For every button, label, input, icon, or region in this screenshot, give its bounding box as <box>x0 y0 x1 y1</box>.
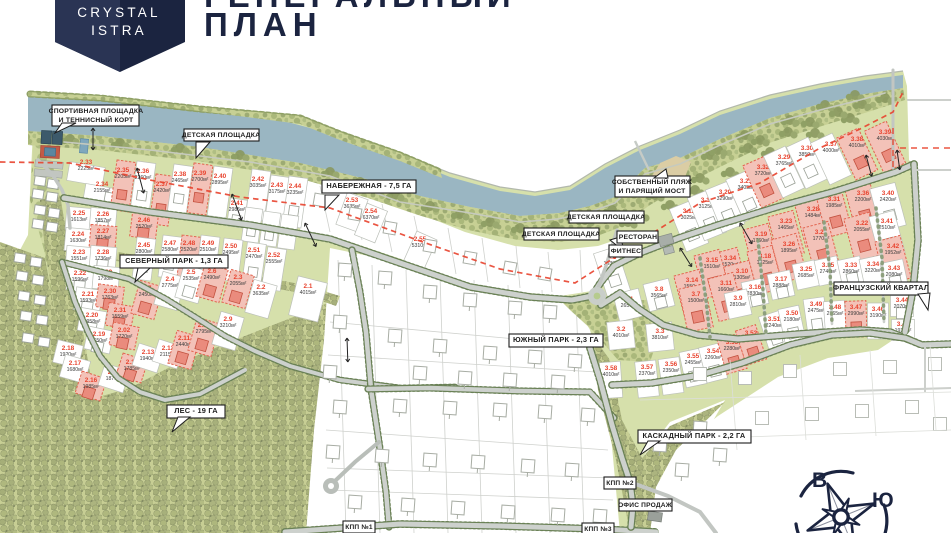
svg-text:2.3: 2.3 <box>234 274 243 281</box>
svg-text:2.6: 2.6 <box>208 268 217 275</box>
svg-text:1985м²: 1985м² <box>826 203 843 209</box>
svg-text:1465м²: 1465м² <box>778 225 795 231</box>
svg-text:2.52: 2.52 <box>268 252 281 259</box>
svg-text:3.14: 3.14 <box>686 277 699 284</box>
svg-text:2.34: 2.34 <box>96 181 109 188</box>
svg-text:ISTRA: ISTRA <box>91 23 147 38</box>
svg-text:3175м²: 3175м² <box>269 189 286 195</box>
svg-text:3.41: 3.41 <box>881 218 894 225</box>
svg-text:2685м²: 2685м² <box>798 273 815 279</box>
svg-text:2.33: 2.33 <box>80 159 93 166</box>
svg-text:3.40: 3.40 <box>882 190 895 197</box>
svg-text:СЕВЕРНЫЙ ПАРК - 1,3 ГА: СЕВЕРНЫЙ ПАРК - 1,3 ГА <box>125 256 223 265</box>
svg-text:3.10: 3.10 <box>736 268 749 275</box>
svg-text:2455м²: 2455м² <box>685 360 702 366</box>
svg-text:1551м²: 1551м² <box>71 256 88 262</box>
svg-text:2.20: 2.20 <box>86 312 99 319</box>
svg-text:РЕСТОРАН: РЕСТОРАН <box>619 234 657 241</box>
svg-text:ФИТНЕС: ФИТНЕС <box>611 248 641 255</box>
svg-text:ЮЖНЫЙ ПАРК - 2,3 ГА: ЮЖНЫЙ ПАРК - 2,3 ГА <box>513 335 599 344</box>
svg-text:2800м²: 2800м² <box>136 249 153 255</box>
svg-text:1484м²: 1484м² <box>805 213 822 219</box>
svg-text:3.29: 3.29 <box>778 154 791 161</box>
svg-text:4030м²: 4030м² <box>877 136 894 142</box>
svg-text:2555м²: 2555м² <box>266 259 283 265</box>
svg-text:2.45: 2.45 <box>138 242 151 249</box>
svg-text:2.25: 2.25 <box>73 210 86 217</box>
svg-text:3.51: 3.51 <box>768 316 781 323</box>
svg-text:2350м²: 2350м² <box>663 368 680 374</box>
svg-text:Ю: Ю <box>872 489 894 512</box>
svg-text:2765м²: 2765м² <box>827 311 844 317</box>
svg-text:1763м²: 1763м² <box>102 295 119 301</box>
svg-text:2.17: 2.17 <box>69 360 82 367</box>
svg-text:2080м²: 2080м² <box>886 272 903 278</box>
svg-text:КАСКАДНЫЙ ПАРК - 2,2 ГА: КАСКАДНЫЙ ПАРК - 2,2 ГА <box>643 431 746 440</box>
svg-text:2.5: 2.5 <box>187 269 196 276</box>
svg-text:2055м²: 2055м² <box>854 227 871 233</box>
svg-text:2510м²: 2510м² <box>200 247 217 253</box>
svg-text:ДЕТСКАЯ ПЛОЩАДКА: ДЕТСКАЯ ПЛОЩАДКА <box>182 132 260 139</box>
svg-text:2.23: 2.23 <box>73 249 86 256</box>
svg-text:2180м²: 2180м² <box>784 317 801 323</box>
svg-text:3.38: 3.38 <box>851 136 864 143</box>
svg-text:3.49: 3.49 <box>810 301 823 308</box>
svg-text:2775м²: 2775м² <box>162 283 179 289</box>
svg-text:4010м²: 4010м² <box>849 143 866 149</box>
svg-text:3.8: 3.8 <box>655 286 664 293</box>
svg-text:3.58: 3.58 <box>605 365 618 372</box>
svg-text:3.28: 3.28 <box>807 206 820 213</box>
svg-text:3.31: 3.31 <box>828 196 841 203</box>
svg-text:2.1: 2.1 <box>304 283 313 290</box>
svg-text:2.21: 2.21 <box>82 291 95 298</box>
svg-text:ФРАНЦУЗСКИЙ КВАРТАЛ: ФРАНЦУЗСКИЙ КВАРТАЛ <box>833 283 929 292</box>
svg-text:2.43: 2.43 <box>271 182 284 189</box>
svg-text:1593м²: 1593м² <box>80 298 97 304</box>
svg-text:3.47: 3.47 <box>850 304 863 311</box>
svg-text:ОФИС ПРОДАЖ: ОФИС ПРОДАЖ <box>618 502 672 509</box>
svg-text:НАБЕРЕЖНАЯ - 7,5 ГА: НАБЕРЕЖНАЯ - 7,5 ГА <box>326 181 412 190</box>
svg-text:2.53: 2.53 <box>346 197 359 204</box>
svg-text:2.46: 2.46 <box>138 217 151 224</box>
svg-text:ЛЕС - 19 ГА: ЛЕС - 19 ГА <box>174 406 218 415</box>
svg-text:2.38: 2.38 <box>174 171 187 178</box>
svg-text:КПП №1: КПП №1 <box>345 524 373 531</box>
svg-text:ДЕТСКАЯ ПЛОЩАДКА: ДЕТСКАЯ ПЛОЩАДКА <box>522 231 600 238</box>
svg-text:2520м²: 2520м² <box>136 224 153 230</box>
svg-text:1736м²: 1736м² <box>95 256 112 262</box>
svg-text:2.35: 2.35 <box>117 167 130 174</box>
svg-text:3.23: 3.23 <box>780 218 793 225</box>
svg-text:2830м²: 2830м² <box>747 291 764 297</box>
svg-text:2465м²: 2465м² <box>172 178 189 184</box>
svg-text:2.9: 2.9 <box>224 316 233 323</box>
svg-text:2.13: 2.13 <box>142 349 155 356</box>
svg-text:3.55: 3.55 <box>687 353 700 360</box>
svg-text:2.28: 2.28 <box>97 249 110 256</box>
svg-text:1559м²: 1559м² <box>112 314 129 320</box>
svg-text:3.25: 3.25 <box>800 266 813 273</box>
svg-text:3210м²: 3210м² <box>220 323 237 329</box>
svg-text:1596м²: 1596м² <box>72 277 89 283</box>
svg-text:2.11: 2.11 <box>178 335 191 342</box>
svg-text:2990м²: 2990м² <box>848 311 865 317</box>
svg-text:2.24: 2.24 <box>72 231 85 238</box>
svg-text:3.33: 3.33 <box>845 262 858 269</box>
svg-text:3235м²: 3235м² <box>287 190 304 196</box>
svg-text:ДЕТСКАЯ ПЛОЩАДКА: ДЕТСКАЯ ПЛОЩАДКА <box>567 214 645 221</box>
svg-text:3.34: 3.34 <box>724 255 737 262</box>
svg-text:КПП №2: КПП №2 <box>606 480 634 487</box>
svg-text:2.02: 2.02 <box>118 327 131 334</box>
svg-text:2860м²: 2860м² <box>843 269 860 275</box>
svg-text:2.27: 2.27 <box>97 228 110 235</box>
svg-text:1985м²: 1985м² <box>83 384 100 390</box>
svg-text:3810м²: 3810м² <box>652 335 669 341</box>
svg-text:2.31: 2.31 <box>114 307 127 314</box>
svg-text:CRYSTAL: CRYSTAL <box>77 5 160 20</box>
svg-text:2490м²: 2490м² <box>204 275 221 281</box>
svg-text:1500м²: 1500м² <box>688 298 705 304</box>
svg-text:2.40: 2.40 <box>214 173 227 180</box>
svg-text:2.18: 2.18 <box>62 345 75 352</box>
svg-text:2.26: 2.26 <box>97 211 110 218</box>
svg-text:2475м²: 2475м² <box>808 308 825 314</box>
svg-text:СПОРТИВНАЯ ПЛОЩАДКА: СПОРТИВНАЯ ПЛОЩАДКА <box>49 108 144 115</box>
svg-text:ПЛАН: ПЛАН <box>204 6 323 43</box>
svg-text:3.56: 3.56 <box>665 361 678 368</box>
svg-text:3.57: 3.57 <box>641 364 654 371</box>
svg-text:2240м²: 2240м² <box>766 323 783 329</box>
svg-text:2055м²: 2055м² <box>230 281 247 287</box>
svg-text:3.17: 3.17 <box>775 276 788 283</box>
svg-text:3.26: 3.26 <box>783 241 796 248</box>
svg-text:2.47: 2.47 <box>164 240 177 247</box>
svg-text:4000м²: 4000м² <box>823 148 840 154</box>
svg-text:3.42: 3.42 <box>887 243 900 250</box>
svg-text:3.36: 3.36 <box>857 190 870 197</box>
svg-text:2260м²: 2260м² <box>705 355 722 361</box>
svg-text:4010м²: 4010м² <box>603 372 620 378</box>
svg-text:1760м²: 1760м² <box>753 238 770 244</box>
svg-text:2.16: 2.16 <box>85 377 98 384</box>
svg-text:2888м²: 2888м² <box>773 283 790 289</box>
svg-text:2700м²: 2700м² <box>192 177 209 183</box>
svg-text:1630м²: 1630м² <box>70 238 87 244</box>
svg-text:2.49: 2.49 <box>202 240 215 247</box>
svg-text:2580м²: 2580м² <box>162 247 179 253</box>
svg-text:3.22: 3.22 <box>856 220 869 227</box>
svg-text:3.54: 3.54 <box>707 348 720 355</box>
svg-text:СОБСТВЕННЫЙ ПЛЯЖ: СОБСТВЕННЫЙ ПЛЯЖ <box>612 177 693 186</box>
svg-text:3565м²: 3565м² <box>651 293 668 299</box>
svg-text:2.51: 2.51 <box>248 247 261 254</box>
svg-text:В: В <box>812 469 827 492</box>
svg-text:3.43: 3.43 <box>888 265 901 272</box>
svg-text:2.41: 2.41 <box>231 200 244 207</box>
svg-text:2895м²: 2895м² <box>212 180 229 186</box>
svg-text:2.19: 2.19 <box>93 331 106 338</box>
svg-text:3.39: 3.39 <box>879 129 892 136</box>
svg-text:1720м²: 1720м² <box>116 334 133 340</box>
svg-text:И ПАРЯЩИЙ МОСТ: И ПАРЯЩИЙ МОСТ <box>618 186 686 195</box>
svg-text:2.42: 2.42 <box>252 176 265 183</box>
svg-text:2420м²: 2420м² <box>154 188 171 194</box>
svg-text:3.2: 3.2 <box>617 326 626 333</box>
svg-text:3635м²: 3635м² <box>253 291 270 297</box>
svg-text:3.34: 3.34 <box>867 261 880 268</box>
svg-text:1952м²: 1952м² <box>885 250 902 256</box>
svg-text:4010м²: 4010м² <box>613 333 630 339</box>
svg-text:3.9: 3.9 <box>734 295 743 302</box>
svg-text:4015м²: 4015м² <box>300 290 317 296</box>
svg-text:1510м²: 1510м² <box>704 264 721 270</box>
svg-text:1305м²: 1305м² <box>734 275 751 281</box>
svg-text:3.50: 3.50 <box>786 310 799 317</box>
svg-text:3720м²: 3720м² <box>755 171 772 177</box>
svg-text:2510м²: 2510м² <box>879 225 896 231</box>
svg-text:2155м²: 2155м² <box>94 188 111 194</box>
svg-text:1895м²: 1895м² <box>781 248 798 254</box>
svg-text:2370м²: 2370м² <box>639 371 656 377</box>
svg-text:2.50: 2.50 <box>225 243 238 250</box>
svg-text:3220м²: 3220м² <box>865 268 882 274</box>
svg-text:2740м²: 2740м² <box>820 269 837 275</box>
svg-text:1857м²: 1857м² <box>95 218 112 224</box>
svg-text:2.44: 2.44 <box>289 183 302 190</box>
svg-text:3290м²: 3290м² <box>717 196 734 202</box>
svg-text:2.2: 2.2 <box>257 284 266 291</box>
svg-text:2280м²: 2280м² <box>724 346 741 352</box>
svg-text:КПП №3: КПП №3 <box>584 526 612 533</box>
svg-text:2.48: 2.48 <box>183 240 196 247</box>
svg-text:3.15: 3.15 <box>706 257 719 264</box>
svg-text:1680м²: 1680м² <box>67 367 84 373</box>
svg-text:2.39: 2.39 <box>194 170 207 177</box>
svg-text:2520м²: 2520м² <box>181 247 198 253</box>
svg-text:2.54: 2.54 <box>365 208 378 215</box>
svg-text:3.7: 3.7 <box>692 291 701 298</box>
svg-text:2535м²: 2535м² <box>183 276 200 282</box>
svg-text:3035м²: 3035м² <box>250 183 267 189</box>
svg-text:2420м²: 2420м² <box>880 197 897 203</box>
svg-text:2470м²: 2470м² <box>246 254 263 260</box>
svg-text:2200м²: 2200м² <box>855 197 872 203</box>
svg-text:1814м²: 1814м² <box>95 235 112 241</box>
svg-text:2.30: 2.30 <box>104 288 117 295</box>
svg-text:2.4: 2.4 <box>166 276 175 283</box>
svg-text:3.11: 3.11 <box>720 280 733 287</box>
svg-text:1613м²: 1613м² <box>71 217 88 223</box>
svg-text:3.19: 3.19 <box>755 231 768 238</box>
svg-text:2810м²: 2810м² <box>730 302 747 308</box>
svg-text:3.16: 3.16 <box>749 284 762 291</box>
